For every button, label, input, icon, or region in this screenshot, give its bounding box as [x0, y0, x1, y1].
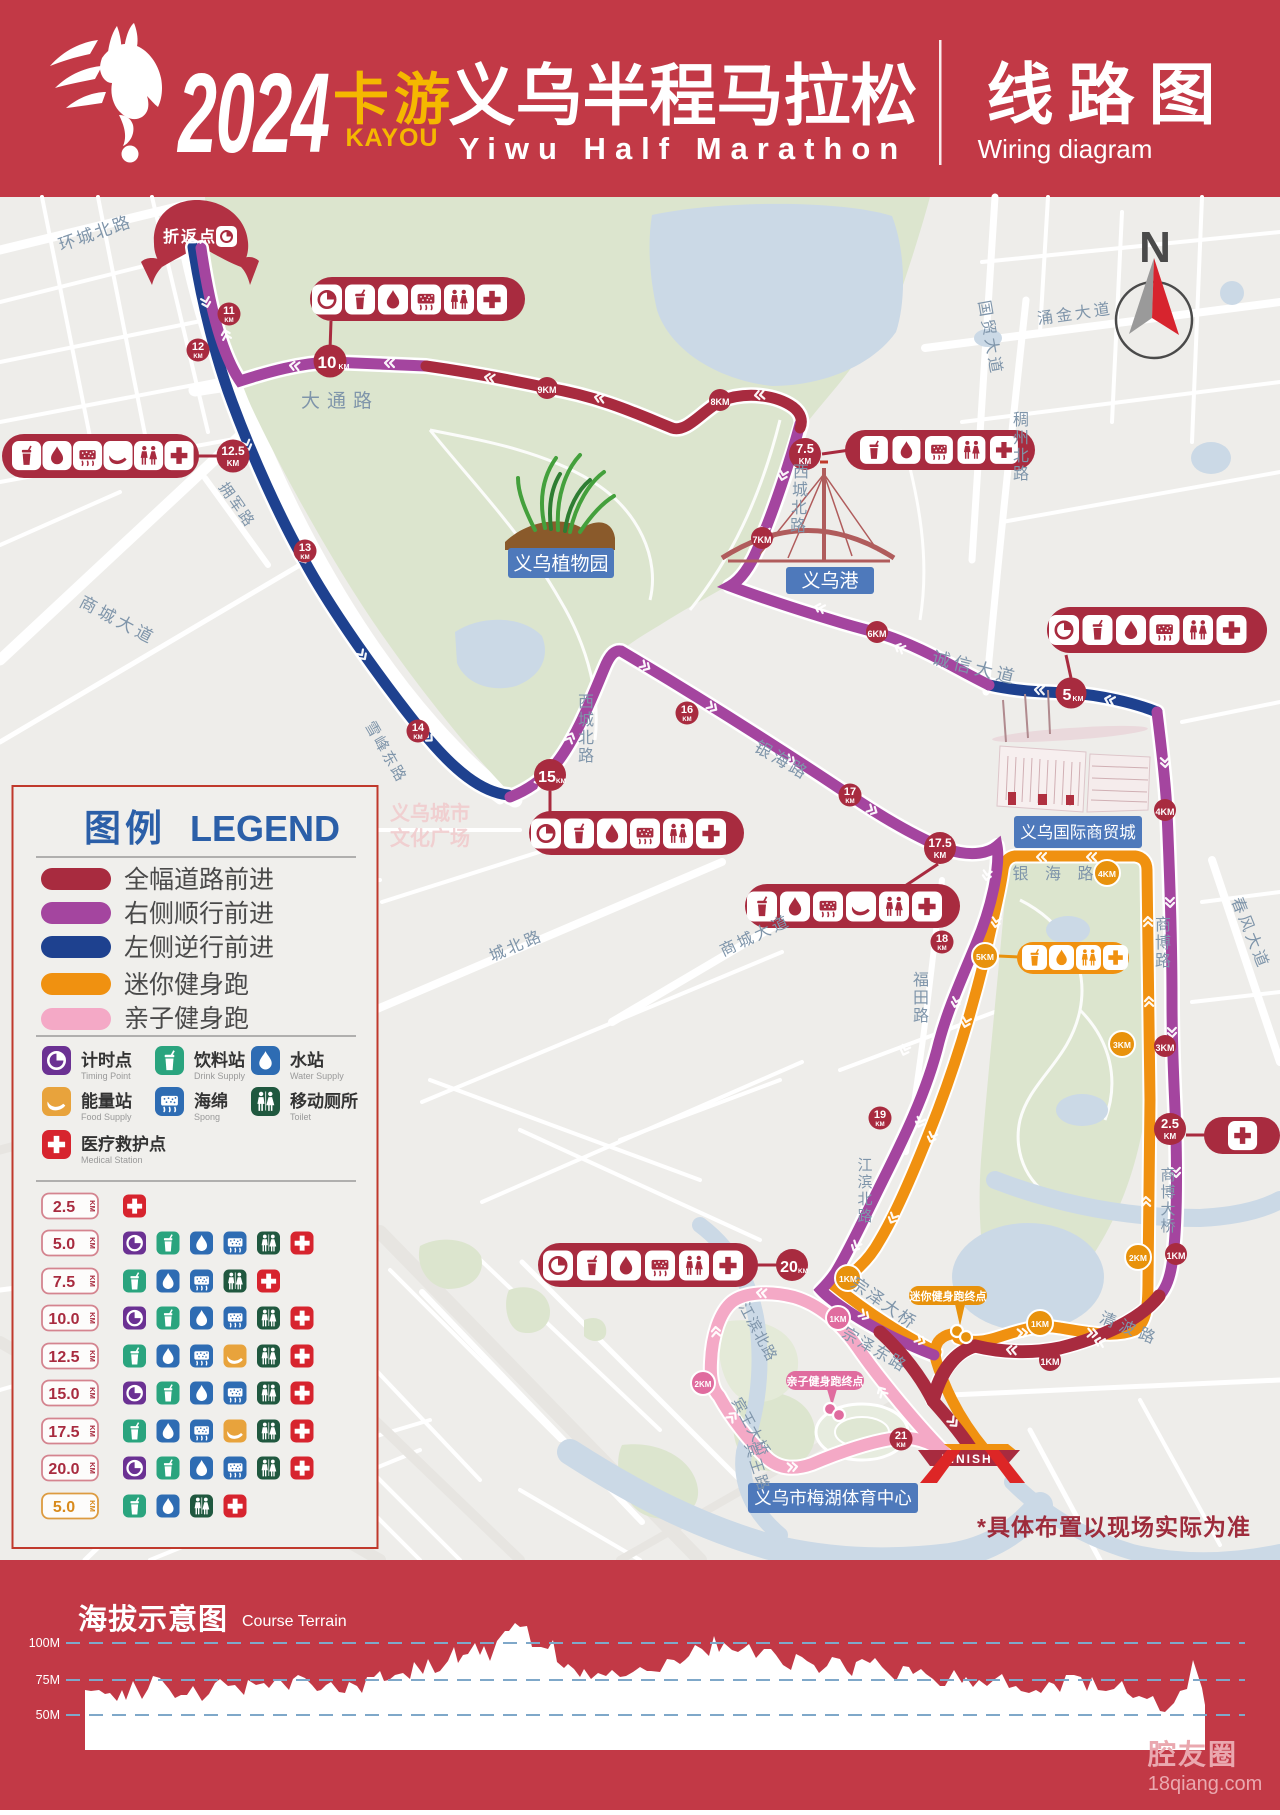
svg-text:义乌城市: 义乌城市	[390, 801, 470, 825]
svg-text:5: 5	[1063, 687, 1072, 704]
svg-text:16: 16	[681, 704, 693, 716]
svg-text:图例: 图例	[84, 808, 166, 849]
svg-text:江: 江	[857, 1157, 872, 1174]
svg-text:1KM: 1KM	[1040, 1357, 1059, 1367]
svg-text:田: 田	[913, 990, 929, 1007]
svg-text:12: 12	[192, 341, 204, 353]
svg-text:4KM: 4KM	[1155, 807, 1174, 817]
svg-text:5.0: 5.0	[53, 1236, 75, 1253]
svg-text:城: 城	[578, 711, 594, 729]
svg-text:12.5: 12.5	[221, 444, 245, 458]
svg-text:海拔示意图: 海拔示意图	[78, 1602, 228, 1636]
svg-text:KM: KM	[88, 1200, 97, 1212]
svg-text:Food Supply: Food Supply	[81, 1112, 132, 1122]
svg-text:迷你健身跑终点: 迷你健身跑终点	[909, 1289, 987, 1303]
svg-text:路: 路	[1155, 952, 1171, 970]
svg-text:18qiang.com: 18qiang.com	[1148, 1773, 1263, 1795]
svg-text:KM: KM	[556, 778, 566, 785]
svg-text:Wiring diagram: Wiring diagram	[978, 134, 1153, 164]
svg-text:移动厕所: 移动厕所	[290, 1091, 358, 1111]
svg-text:商: 商	[1160, 1167, 1175, 1184]
svg-text:KM: KM	[934, 851, 947, 860]
svg-text:10: 10	[318, 353, 337, 372]
svg-text:13: 13	[299, 542, 311, 554]
svg-text:1KM: 1KM	[830, 1315, 847, 1324]
svg-text:Water Supply: Water Supply	[290, 1071, 344, 1081]
svg-text:北: 北	[1013, 447, 1029, 465]
svg-text:KM: KM	[88, 1425, 97, 1437]
svg-text:17.5: 17.5	[928, 836, 952, 850]
svg-text:KM: KM	[88, 1350, 97, 1362]
svg-text:LEGEND: LEGEND	[190, 808, 340, 849]
svg-text:17.5: 17.5	[48, 1424, 79, 1441]
svg-text:2.5: 2.5	[53, 1199, 75, 1216]
svg-text:义乌国际商贸城: 义乌国际商贸城	[1020, 823, 1136, 842]
svg-text:路: 路	[578, 747, 594, 765]
svg-text:大: 大	[1160, 1201, 1175, 1218]
svg-text:路: 路	[1013, 465, 1029, 483]
svg-text:义乌市梅湖体育中心: 义乌市梅湖体育中心	[754, 1488, 912, 1508]
svg-text:迷你健身跑: 迷你健身跑	[124, 971, 249, 999]
svg-text:1KM: 1KM	[1031, 1319, 1049, 1329]
svg-text:2024: 2024	[177, 50, 330, 176]
svg-text:医疗救护点: 医疗救护点	[81, 1134, 166, 1154]
svg-text:KM: KM	[88, 1387, 97, 1399]
svg-text:5.0: 5.0	[53, 1499, 75, 1516]
svg-text:亲子健身跑: 亲子健身跑	[124, 1005, 249, 1033]
svg-text:海绵: 海绵	[194, 1091, 228, 1111]
svg-text:KM: KM	[896, 1443, 905, 1449]
svg-text:KM: KM	[798, 1268, 808, 1275]
svg-text:11: 11	[223, 305, 235, 317]
svg-text:8KM: 8KM	[710, 397, 729, 407]
svg-text:Drink Supply: Drink Supply	[194, 1071, 246, 1081]
svg-text:饮料站: 饮料站	[193, 1050, 245, 1070]
svg-text:KM: KM	[227, 459, 240, 468]
svg-text:Yiwu Half Marathon: Yiwu Half Marathon	[459, 131, 907, 166]
svg-text:线路图: 线路图	[987, 58, 1230, 133]
svg-text:路: 路	[857, 1208, 872, 1225]
svg-text:100M: 100M	[29, 1636, 60, 1650]
svg-text:17: 17	[844, 786, 856, 798]
svg-text:50M: 50M	[36, 1708, 60, 1722]
svg-text:21: 21	[895, 1430, 907, 1442]
svg-text:KM: KM	[1164, 1132, 1177, 1141]
svg-text:7.5: 7.5	[53, 1274, 75, 1291]
svg-text:博: 博	[1160, 1184, 1175, 1201]
svg-text:7KM: 7KM	[752, 535, 771, 545]
svg-text:滨: 滨	[857, 1174, 872, 1191]
svg-text:全幅道路前进: 全幅道路前进	[124, 866, 274, 894]
svg-text:3KM: 3KM	[1113, 1040, 1131, 1050]
svg-text:计时点: 计时点	[81, 1050, 132, 1070]
svg-text:西: 西	[793, 464, 809, 481]
svg-text:KM: KM	[682, 717, 691, 723]
svg-text:KM: KM	[413, 735, 422, 741]
svg-text:19: 19	[874, 1109, 886, 1121]
svg-text:左侧逆行前进: 左侧逆行前进	[124, 934, 274, 962]
svg-text:KM: KM	[88, 1462, 97, 1474]
svg-text:义乌半程马拉松: 义乌半程马拉松	[449, 59, 918, 134]
svg-text:卡游: 卡游	[333, 68, 455, 131]
svg-text:福: 福	[913, 971, 929, 989]
svg-text:12.5: 12.5	[48, 1349, 79, 1366]
svg-text:桥: 桥	[1160, 1218, 1175, 1235]
svg-text:KM: KM	[1073, 696, 1084, 703]
svg-text:KM: KM	[88, 1237, 97, 1249]
svg-text:北: 北	[857, 1191, 872, 1208]
svg-text:亲子健身跑终点: 亲子健身跑终点	[787, 1374, 864, 1388]
svg-text:KM: KM	[875, 1122, 884, 1128]
svg-text:4KM: 4KM	[1098, 869, 1116, 879]
svg-text:路: 路	[790, 517, 806, 535]
svg-text:6KM: 6KM	[867, 629, 886, 639]
svg-text:KM: KM	[339, 364, 350, 371]
svg-text:2KM: 2KM	[695, 1380, 712, 1389]
svg-text:15: 15	[538, 769, 556, 786]
svg-text:10.0: 10.0	[48, 1311, 79, 1328]
svg-text:大通路: 大通路	[301, 390, 379, 412]
svg-text:KM: KM	[300, 555, 309, 561]
svg-text:14: 14	[412, 722, 425, 734]
svg-text:KM: KM	[88, 1500, 97, 1512]
svg-text:75M: 75M	[36, 1673, 60, 1687]
svg-text:城: 城	[792, 481, 808, 499]
svg-text:文化广场: 文化广场	[390, 826, 470, 850]
svg-text:1KM: 1KM	[1166, 1251, 1185, 1261]
svg-text:腔友圈: 腔友圈	[1147, 1739, 1238, 1770]
svg-text:KM: KM	[937, 946, 946, 952]
svg-text:Spong: Spong	[194, 1112, 220, 1122]
svg-text:折返点: 折返点	[163, 227, 217, 246]
svg-text:Medical Station: Medical Station	[81, 1155, 143, 1165]
svg-text:银 海 路: 银 海 路	[1013, 865, 1100, 883]
svg-text:KM: KM	[845, 799, 854, 805]
svg-text:路: 路	[913, 1007, 929, 1025]
svg-text:Course Terrain: Course Terrain	[242, 1613, 347, 1630]
svg-text:18: 18	[936, 933, 948, 945]
svg-text:3KM: 3KM	[1155, 1043, 1174, 1053]
svg-text:2KM: 2KM	[1129, 1253, 1147, 1263]
svg-text:Toilet: Toilet	[290, 1112, 312, 1122]
svg-text:稠: 稠	[1013, 411, 1029, 429]
svg-text:北: 北	[791, 499, 807, 517]
svg-text:能量站: 能量站	[81, 1091, 132, 1111]
svg-text:20: 20	[780, 1259, 798, 1276]
svg-text:州: 州	[1013, 430, 1029, 447]
svg-text:西: 西	[578, 694, 594, 711]
svg-text:商: 商	[1155, 916, 1171, 934]
svg-text:水站: 水站	[290, 1050, 324, 1070]
svg-text:KM: KM	[88, 1275, 97, 1287]
svg-text:KM: KM	[224, 318, 233, 324]
svg-text:KAYOU: KAYOU	[346, 124, 439, 152]
svg-text:义乌植物园: 义乌植物园	[513, 553, 608, 575]
svg-text:义乌港: 义乌港	[801, 570, 858, 592]
svg-text:Timing Point: Timing Point	[81, 1071, 131, 1081]
svg-text:9KM: 9KM	[537, 385, 556, 395]
svg-text:北: 北	[578, 729, 594, 747]
svg-text:右侧顺行前进: 右侧顺行前进	[124, 900, 274, 928]
svg-text:7.5: 7.5	[796, 441, 814, 456]
svg-text:15.0: 15.0	[48, 1386, 79, 1403]
svg-text:2.5: 2.5	[1161, 1116, 1179, 1131]
svg-text:博: 博	[1155, 934, 1171, 952]
svg-text:5KM: 5KM	[976, 952, 994, 962]
svg-text:KM: KM	[88, 1312, 97, 1324]
svg-text:*具体布置以现场实际为准: *具体布置以现场实际为准	[977, 1514, 1251, 1540]
svg-text:20.0: 20.0	[48, 1461, 79, 1478]
svg-text:KM: KM	[193, 354, 202, 360]
